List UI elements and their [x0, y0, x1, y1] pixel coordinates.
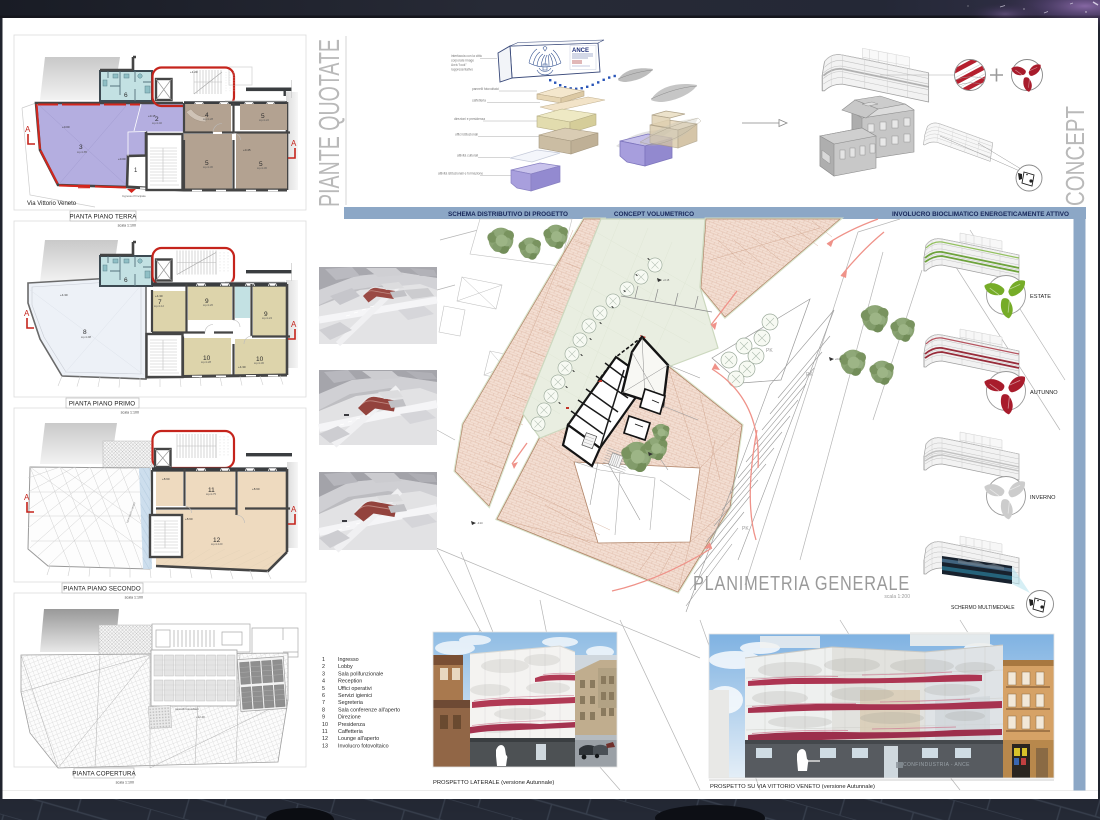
svg-text:PLANIMETRIA GENERALE: PLANIMETRIA GENERALE	[693, 572, 910, 595]
svg-text:6: 6	[322, 693, 325, 699]
svg-text:scala 1:100: scala 1:100	[125, 596, 143, 600]
svg-text:8: 8	[83, 329, 87, 336]
svg-text:5: 5	[322, 686, 325, 692]
svg-text:+0.00: +0.00	[835, 358, 842, 361]
svg-text:+8.60: +8.60	[162, 477, 170, 481]
svg-text:A: A	[24, 309, 30, 318]
svg-text:caffetteria: caffetteria	[472, 99, 486, 103]
svg-text:12: 12	[322, 736, 328, 742]
svg-text:PK: PK	[766, 348, 773, 354]
svg-text:Caffetteria: Caffetteria	[338, 729, 363, 735]
svg-text:attività istituzionali e forma: attività istituzionali e formazione	[438, 172, 483, 176]
svg-text:+0.15: +0.15	[148, 114, 156, 118]
svg-text:13: 13	[322, 743, 328, 749]
svg-text:A: A	[24, 493, 30, 502]
svg-text:sq.mt.12: sq.mt.12	[154, 304, 165, 308]
svg-text:PIANTA PIANO PRIMO: PIANTA PIANO PRIMO	[69, 401, 135, 408]
svg-text:SCHEMA DISTRIBUTIVO DI PROGETT: SCHEMA DISTRIBUTIVO DI PROGETTO	[448, 211, 568, 218]
svg-text:6: 6	[124, 277, 128, 284]
svg-text:A: A	[291, 320, 297, 329]
svg-text:3: 3	[322, 671, 325, 677]
svg-text:+0.00: +0.00	[118, 157, 126, 161]
svg-text:CONCEPT: CONCEPT	[1060, 106, 1090, 206]
svg-text:PK: PK	[806, 372, 813, 378]
svg-text:2: 2	[322, 664, 325, 670]
svg-text:-0.10: -0.10	[477, 522, 483, 525]
svg-text:+8.60: +8.60	[252, 487, 260, 491]
svg-text:ANCE: ANCE	[572, 48, 589, 54]
svg-text:Ingresso Principale: Ingresso Principale	[122, 194, 146, 198]
svg-text:sq.mt.28: sq.mt.28	[201, 360, 212, 364]
svg-text:+0.00: +0.00	[62, 125, 70, 129]
svg-text:sq.mt.30: sq.mt.30	[257, 166, 268, 170]
svg-text:sq.mt.24: sq.mt.24	[262, 316, 273, 320]
svg-text:sq.mt.22: sq.mt.22	[259, 118, 270, 122]
svg-text:+4.30: +4.30	[155, 294, 163, 298]
svg-text:11: 11	[322, 729, 328, 735]
svg-text:9: 9	[322, 715, 325, 721]
svg-text:sq.mt.30: sq.mt.30	[203, 165, 214, 169]
svg-text:CONFINDUSTRIA - ANCE: CONFINDUSTRIA - ANCE	[903, 762, 970, 768]
svg-text:pannelli fotovoltaici: pannelli fotovoltaici	[175, 707, 199, 711]
svg-text:Uffici operativi: Uffici operativi	[338, 686, 372, 692]
svg-text:PIANTA COPERTURA: PIANTA COPERTURA	[72, 771, 136, 778]
svg-text:uffici istituzionali: uffici istituzionali	[455, 133, 478, 137]
svg-text:+1.20: +1.20	[190, 70, 198, 74]
svg-text:sq.mt.120: sq.mt.120	[211, 542, 223, 546]
svg-text:attività culturali: attività culturali	[457, 154, 478, 158]
svg-text:PIANTE QUOTATE: PIANTE QUOTATE	[314, 39, 346, 207]
svg-text:Avrà "look": Avrà "look"	[451, 63, 467, 67]
svg-text:sq.mt.26: sq.mt.26	[203, 303, 214, 307]
svg-text:Direzione: Direzione	[338, 715, 361, 721]
svg-text:Sala conferenze all'aperto: Sala conferenze all'aperto	[338, 707, 400, 713]
svg-text:8: 8	[322, 707, 325, 713]
svg-text:10: 10	[322, 722, 328, 728]
svg-text:A: A	[25, 125, 31, 134]
svg-text:corporate image: corporate image	[451, 59, 474, 63]
svg-text:Sala polifunzionale: Sala polifunzionale	[338, 671, 383, 677]
svg-text:6: 6	[124, 92, 128, 99]
svg-text:INVOLUCRO BIOCLIMATICO ENERGET: INVOLUCRO BIOCLIMATICO ENERGETICAMENTE A…	[892, 211, 1069, 218]
svg-text:rappresentativo: rappresentativo	[451, 68, 473, 72]
svg-text:scala 1:100: scala 1:100	[121, 411, 139, 415]
svg-text:PROSPETTO LATERALE (versione A: PROSPETTO LATERALE (versione Autunnale)	[433, 780, 554, 786]
svg-text:INVERNO: INVERNO	[1030, 495, 1056, 501]
svg-text:scala 1:100: scala 1:100	[118, 224, 136, 228]
svg-text:SCHERMO MULTIMEDIALE: SCHERMO MULTIMEDIALE	[951, 605, 1015, 611]
svg-text:sq.mt.75: sq.mt.75	[206, 492, 217, 496]
svg-text:PROSPETTO SU VIA VITTORIO VENE: PROSPETTO SU VIA VITTORIO VENETO (versio…	[710, 784, 875, 790]
svg-text:PIANTA PIANO TERRA: PIANTA PIANO TERRA	[70, 214, 138, 221]
svg-text:+12.40: +12.40	[196, 715, 205, 719]
svg-text:Ingresso: Ingresso	[338, 657, 359, 663]
svg-text:sq.mt.98: sq.mt.98	[81, 335, 92, 339]
svg-text:4: 4	[322, 679, 325, 685]
svg-text:Lounge all'aperto: Lounge all'aperto	[338, 736, 379, 742]
svg-text:+8.60: +8.60	[185, 517, 193, 521]
svg-text:scala 1:200: scala 1:200	[884, 594, 910, 600]
svg-text:A: A	[291, 139, 297, 148]
svg-text:1: 1	[322, 657, 325, 663]
svg-text:Servizi igienici: Servizi igienici	[338, 693, 372, 699]
svg-text:A: A	[291, 505, 297, 514]
svg-text:+0.15: +0.15	[663, 279, 670, 282]
svg-text:Via Vittorio Veneto: Via Vittorio Veneto	[27, 201, 77, 207]
svg-text:3: 3	[79, 144, 83, 151]
svg-text:sq.mt.30: sq.mt.30	[254, 361, 265, 365]
svg-text:Involucro fotovoltaico: Involucro fotovoltaico	[338, 743, 389, 749]
svg-text:Lobby: Lobby	[338, 664, 353, 670]
svg-text:7: 7	[322, 700, 325, 706]
svg-text:scala 1:100: scala 1:100	[116, 781, 134, 785]
svg-text:sq.mt.40: sq.mt.40	[152, 121, 163, 125]
svg-text:direzioni e presidenza: direzioni e presidenza	[454, 117, 485, 121]
svg-text:CONCEPT VOLUMETRICO: CONCEPT VOLUMETRICO	[614, 211, 694, 218]
svg-text:pannelli fotovoltaici: pannelli fotovoltaici	[472, 87, 499, 91]
svg-text:ESTATE: ESTATE	[1030, 294, 1051, 300]
svg-text:interfaccia con la città: interfaccia con la città	[451, 54, 482, 58]
svg-text:PIANTA PIANO SECONDO: PIANTA PIANO SECONDO	[63, 586, 141, 593]
svg-text:Reception: Reception	[338, 679, 362, 685]
svg-text:sq.mt.85: sq.mt.85	[77, 150, 88, 154]
svg-text:+4.30: +4.30	[60, 293, 68, 297]
svg-text:sq.mt.28: sq.mt.28	[203, 117, 214, 121]
svg-text:+0.45: +0.45	[243, 148, 251, 152]
svg-text:Segreteria: Segreteria	[338, 700, 363, 706]
svg-text:PK: PK	[742, 526, 749, 532]
svg-text:AUTUNNO: AUTUNNO	[1030, 390, 1058, 396]
svg-text:Presidenza: Presidenza	[338, 722, 365, 728]
svg-text:+4.30: +4.30	[238, 365, 246, 369]
